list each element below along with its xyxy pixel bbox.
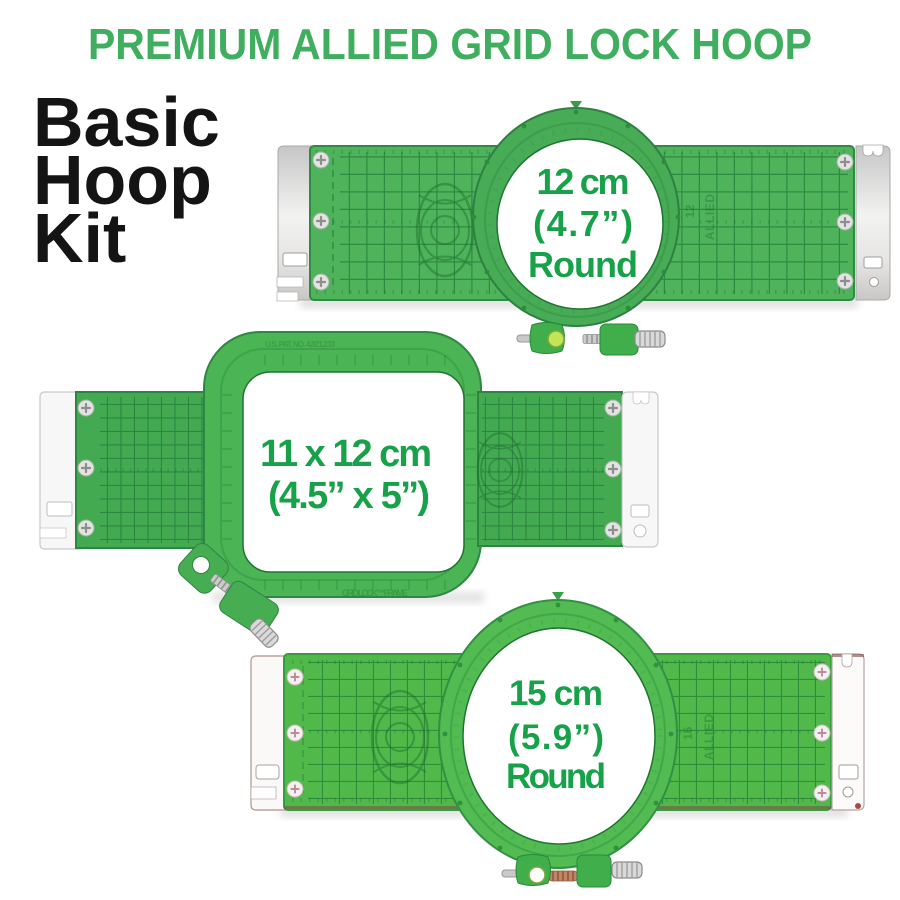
svg-text:(4.7”): (4.7”) <box>533 203 633 244</box>
svg-text:ALLIED: ALLIED <box>702 714 716 760</box>
svg-text:Round: Round <box>528 244 638 285</box>
svg-text:15: 15 <box>681 726 695 740</box>
svg-text:15 cm: 15 cm <box>509 674 603 713</box>
svg-text:GRID-LOCK™ FRAME: GRID-LOCK™ FRAME <box>342 588 408 598</box>
svg-text:U.S. PAT. NO. 4,821,233: U.S. PAT. NO. 4,821,233 <box>265 340 336 349</box>
svg-text:11 x 12 cm: 11 x 12 cm <box>260 433 432 475</box>
svg-text:Kit: Kit <box>33 199 126 277</box>
svg-text:Round: Round <box>506 757 606 796</box>
svg-text:PREMIUM ALLIED GRID LOCK HOOP: PREMIUM ALLIED GRID LOCK HOOP <box>88 20 812 69</box>
svg-text:12: 12 <box>683 204 697 218</box>
svg-text:(4.5” x 5”): (4.5” x 5”) <box>268 475 430 517</box>
svg-text:12 cm: 12 cm <box>537 161 630 202</box>
svg-text:(5.9”): (5.9”) <box>508 718 604 757</box>
svg-text:ALLIED: ALLIED <box>703 194 717 240</box>
